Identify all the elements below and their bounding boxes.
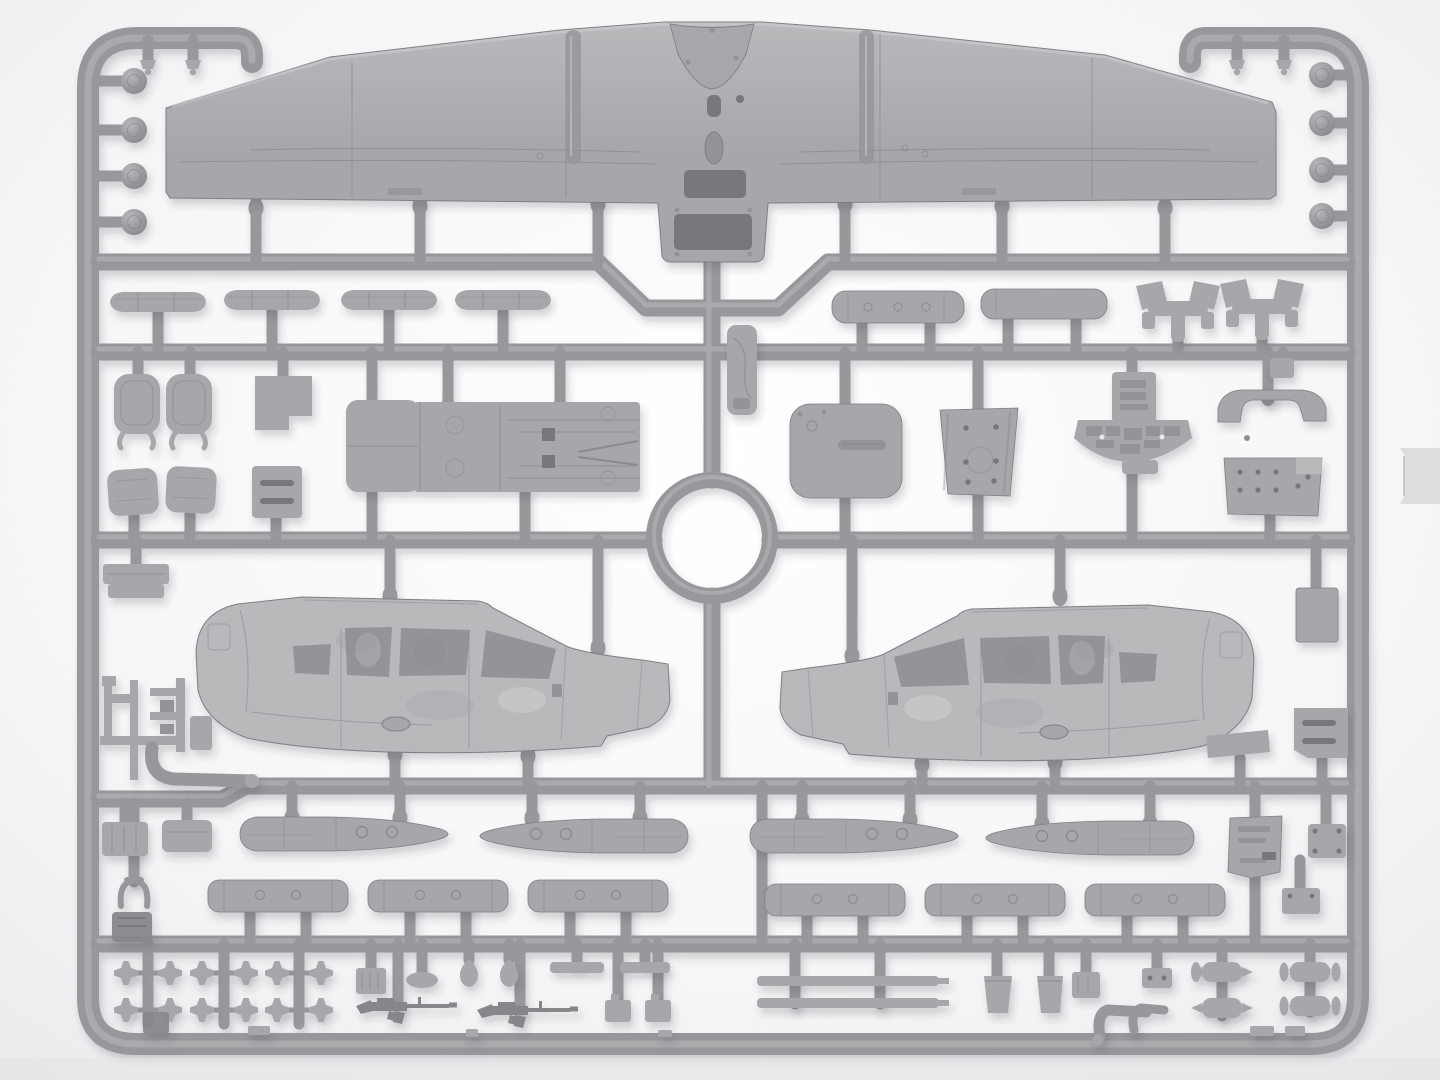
oval-plate-part — [406, 972, 438, 988]
radio-box-part — [356, 968, 386, 994]
document-style-panel-part — [1228, 816, 1282, 878]
seat-side-frame-part — [727, 325, 757, 415]
hole-plate-part — [1142, 968, 1172, 988]
photo-of-model-kit-sprue: Gray injection-moulded plastic model-kit… — [0, 0, 1440, 1080]
sprue-photo-canvas: Gray injection-moulded plastic model-kit… — [0, 0, 1440, 1080]
riveted-bulkhead-part — [1224, 458, 1322, 516]
tray-stack-part — [103, 564, 169, 598]
riveted-panel-part — [940, 408, 1018, 496]
slotted-panel-part — [252, 466, 302, 518]
photo-edge-shade — [0, 1058, 1440, 1080]
cabin-door-part — [790, 404, 902, 498]
cabin-floor-part — [346, 400, 640, 492]
